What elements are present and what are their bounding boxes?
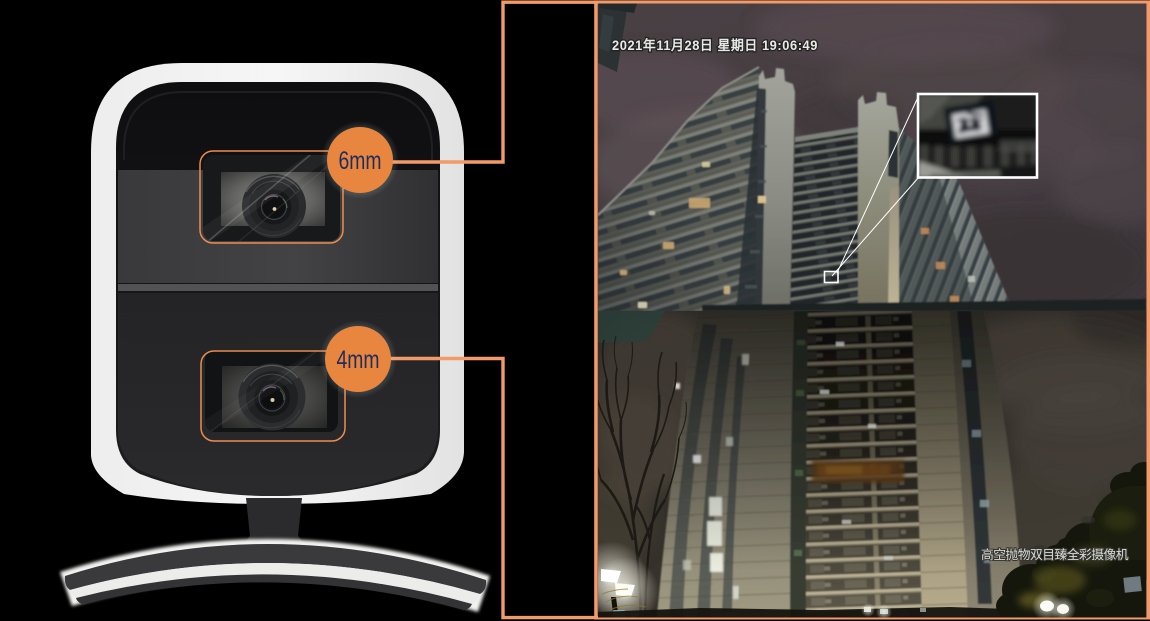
svg-text:2021年11月28日 星期日 19:06:49: 2021年11月28日 星期日 19:06:49 <box>612 37 818 53</box>
svg-text:6mm: 6mm <box>339 147 382 175</box>
svg-text:4mm: 4mm <box>337 346 380 374</box>
svg-text:高空抛物双目臻全彩摄像机: 高空抛物双目臻全彩摄像机 <box>981 547 1129 562</box>
